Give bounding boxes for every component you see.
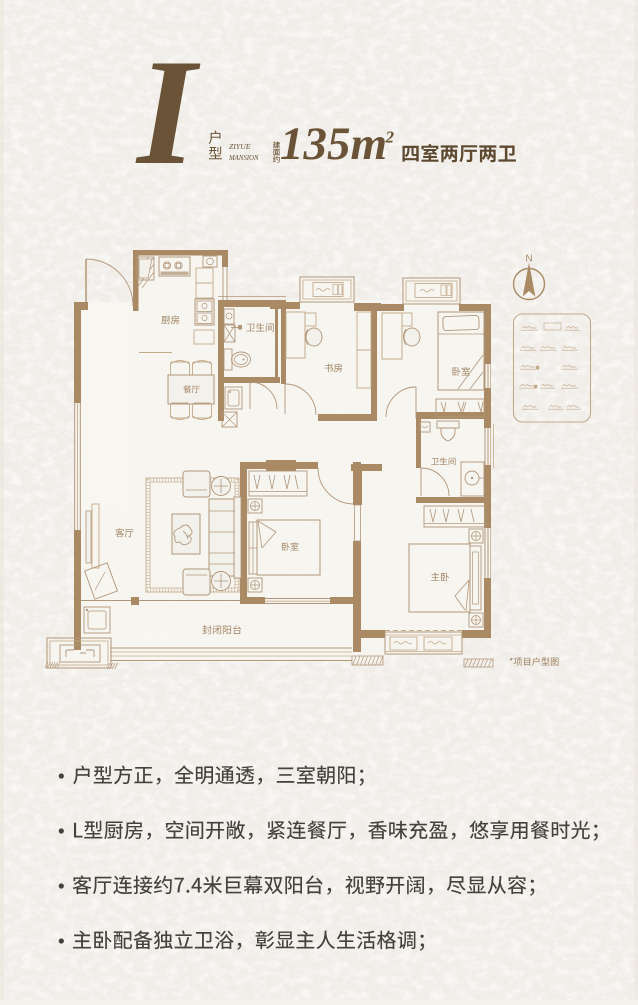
svg-text:2: 2: [385, 128, 395, 147]
svg-text:MANSION: MANSION: [228, 153, 259, 162]
svg-text:135m: 135m: [280, 118, 387, 170]
svg-text:ZIYUE: ZIYUE: [229, 142, 251, 151]
svg-text:I: I: [135, 28, 201, 196]
svg-text:N: N: [525, 254, 532, 265]
